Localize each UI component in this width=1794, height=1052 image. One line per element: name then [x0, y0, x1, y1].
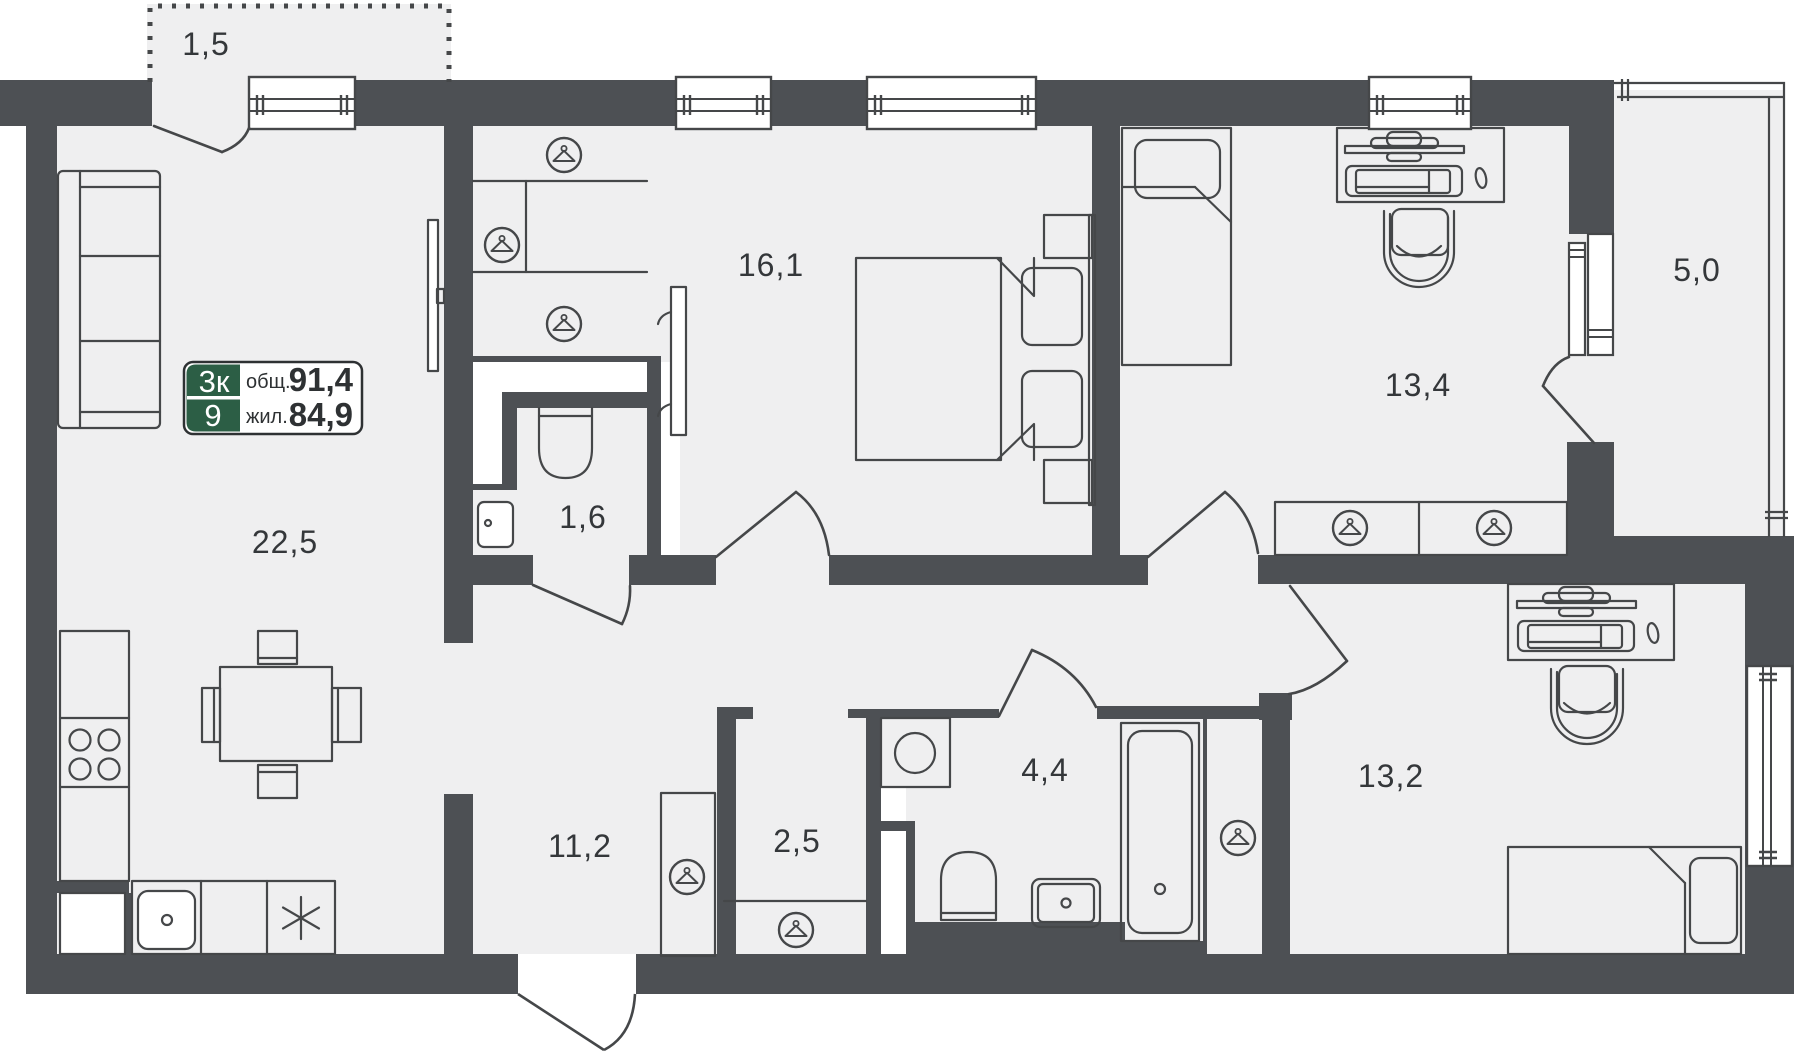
- svg-text:9: 9: [204, 398, 221, 433]
- svg-text:общ.: общ.: [246, 371, 291, 393]
- svg-text:11,2: 11,2: [548, 828, 612, 864]
- svg-text:2,5: 2,5: [773, 823, 820, 859]
- svg-text:16,1: 16,1: [738, 247, 804, 283]
- svg-text:жил.: жил.: [246, 406, 288, 428]
- svg-text:3к: 3к: [199, 364, 230, 399]
- svg-text:1,6: 1,6: [559, 499, 606, 535]
- svg-text:84,9: 84,9: [289, 396, 353, 433]
- svg-text:13,2: 13,2: [1358, 758, 1424, 794]
- svg-text:13,4: 13,4: [1385, 367, 1451, 403]
- svg-text:22,5: 22,5: [252, 524, 318, 560]
- svg-text:4,4: 4,4: [1021, 752, 1068, 788]
- svg-text:1,5: 1,5: [182, 26, 229, 62]
- svg-text:91,4: 91,4: [289, 361, 354, 398]
- svg-text:5,0: 5,0: [1673, 252, 1720, 288]
